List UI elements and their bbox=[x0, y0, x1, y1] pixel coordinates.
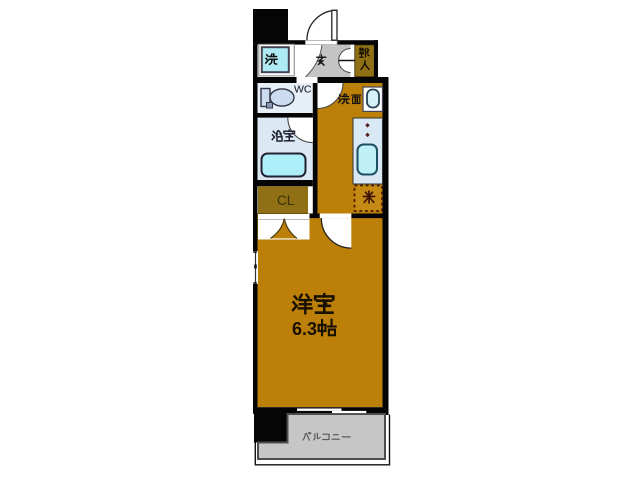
svg-text:CL: CL bbox=[277, 193, 295, 208]
svg-text:6.3: 6.3 bbox=[292, 319, 317, 339]
svg-text:WC: WC bbox=[294, 84, 312, 96]
